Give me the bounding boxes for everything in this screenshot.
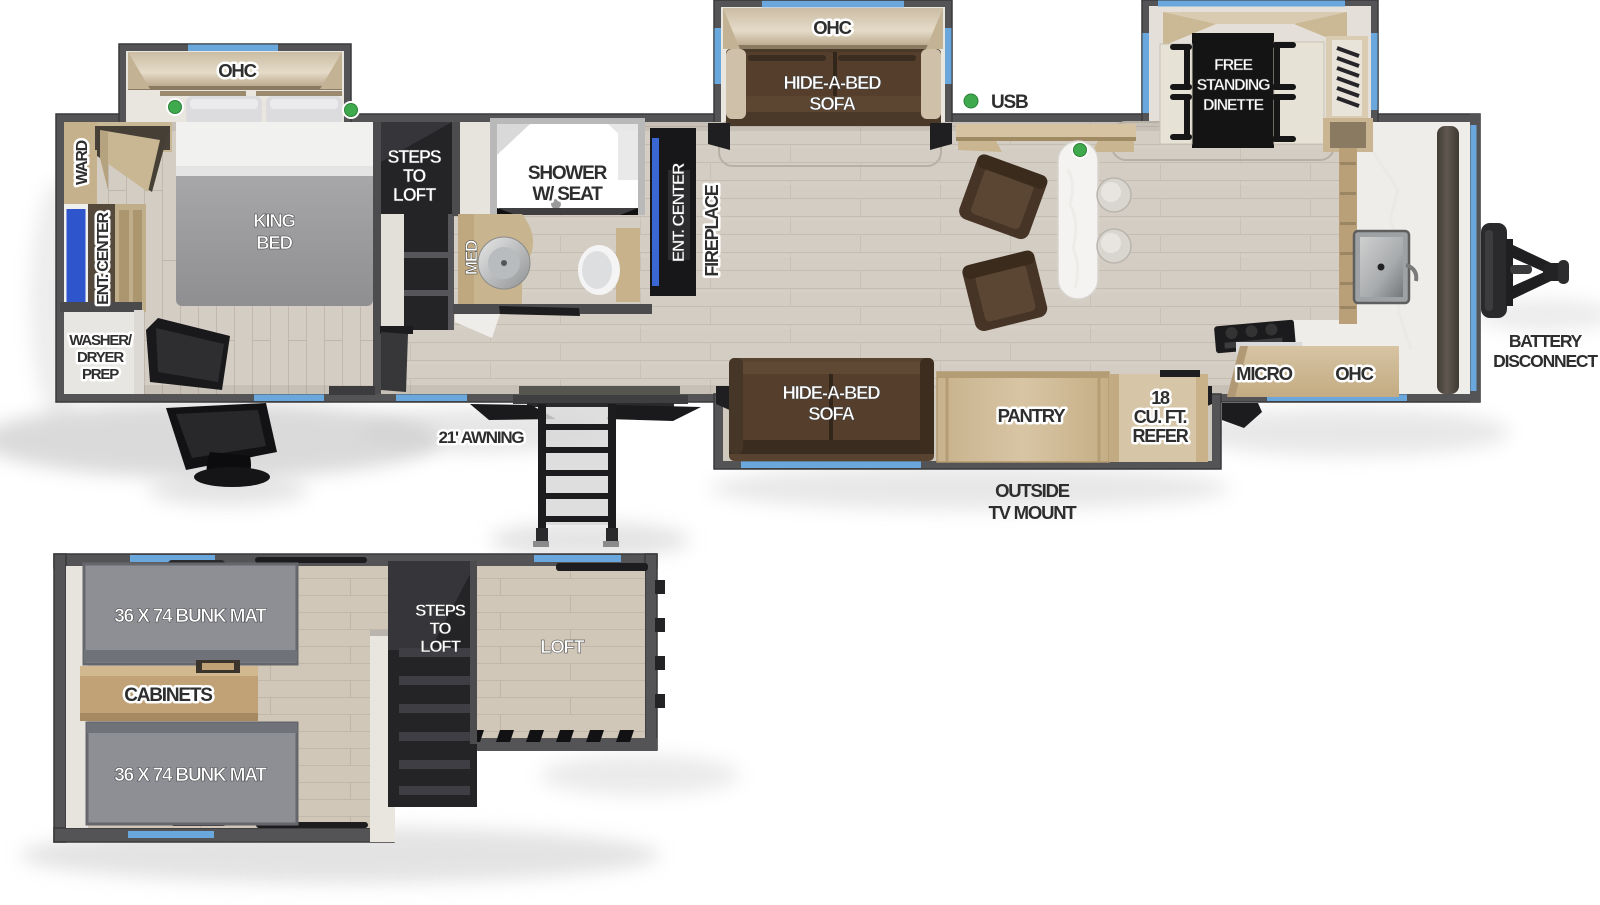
svg-text:LOFT: LOFT — [393, 185, 436, 205]
svg-text:FREE: FREE — [1214, 57, 1253, 74]
svg-text:PREP: PREP — [82, 366, 119, 383]
svg-text:ENT. CENTER: ENT. CENTER — [669, 163, 688, 262]
svg-text:TO: TO — [430, 619, 452, 638]
svg-text:TO: TO — [403, 166, 426, 186]
svg-text:LOFT: LOFT — [420, 637, 461, 656]
svg-text:STANDING: STANDING — [1197, 77, 1271, 94]
svg-text:W/ SEAT: W/ SEAT — [532, 184, 603, 205]
svg-text:PANTRY: PANTRY — [998, 405, 1067, 426]
svg-text:18: 18 — [1151, 388, 1170, 408]
svg-text:LOFT: LOFT — [540, 636, 585, 657]
svg-text:MICRO: MICRO — [1236, 363, 1292, 384]
svg-text:CU. FT.: CU. FT. — [1134, 407, 1187, 427]
svg-text:OHC: OHC — [1335, 363, 1373, 384]
svg-text:SOFA: SOFA — [808, 403, 854, 424]
svg-text:STEPS: STEPS — [415, 601, 466, 620]
svg-text:STEPS: STEPS — [387, 147, 441, 167]
svg-text:OHC: OHC — [813, 17, 851, 38]
svg-text:DISCONNECT: DISCONNECT — [1493, 351, 1598, 371]
svg-text:21' AWNING: 21' AWNING — [439, 428, 525, 447]
svg-text:KING: KING — [253, 210, 295, 231]
svg-text:WARD: WARD — [74, 140, 91, 185]
svg-text:CABINETS: CABINETS — [124, 685, 212, 706]
svg-text:OUTSIDE: OUTSIDE — [995, 480, 1070, 501]
svg-text:36 X 74 BUNK MAT: 36 X 74 BUNK MAT — [114, 765, 267, 786]
svg-text:BATTERY: BATTERY — [1509, 331, 1583, 351]
svg-text:BED: BED — [256, 232, 292, 253]
svg-text:MED: MED — [462, 240, 481, 275]
svg-text:WASHER/: WASHER/ — [69, 332, 133, 349]
svg-text:ENT. CENTER: ENT. CENTER — [95, 212, 112, 305]
svg-text:DRYER: DRYER — [77, 349, 124, 366]
svg-text:USB: USB — [991, 92, 1028, 113]
svg-text:36 X 74 BUNK MAT: 36 X 74 BUNK MAT — [114, 606, 267, 627]
svg-text:OHC: OHC — [218, 60, 256, 81]
svg-text:HIDE-A-BED: HIDE-A-BED — [783, 382, 881, 403]
svg-text:REFER: REFER — [1132, 426, 1188, 446]
svg-text:FIREPLACE: FIREPLACE — [702, 184, 722, 276]
svg-text:DINETTE: DINETTE — [1203, 97, 1265, 114]
svg-text:SOFA: SOFA — [809, 93, 855, 114]
svg-text:HIDE-A-BED: HIDE-A-BED — [784, 72, 882, 93]
svg-text:TV MOUNT: TV MOUNT — [988, 502, 1077, 523]
svg-text:SHOWER: SHOWER — [528, 163, 608, 184]
